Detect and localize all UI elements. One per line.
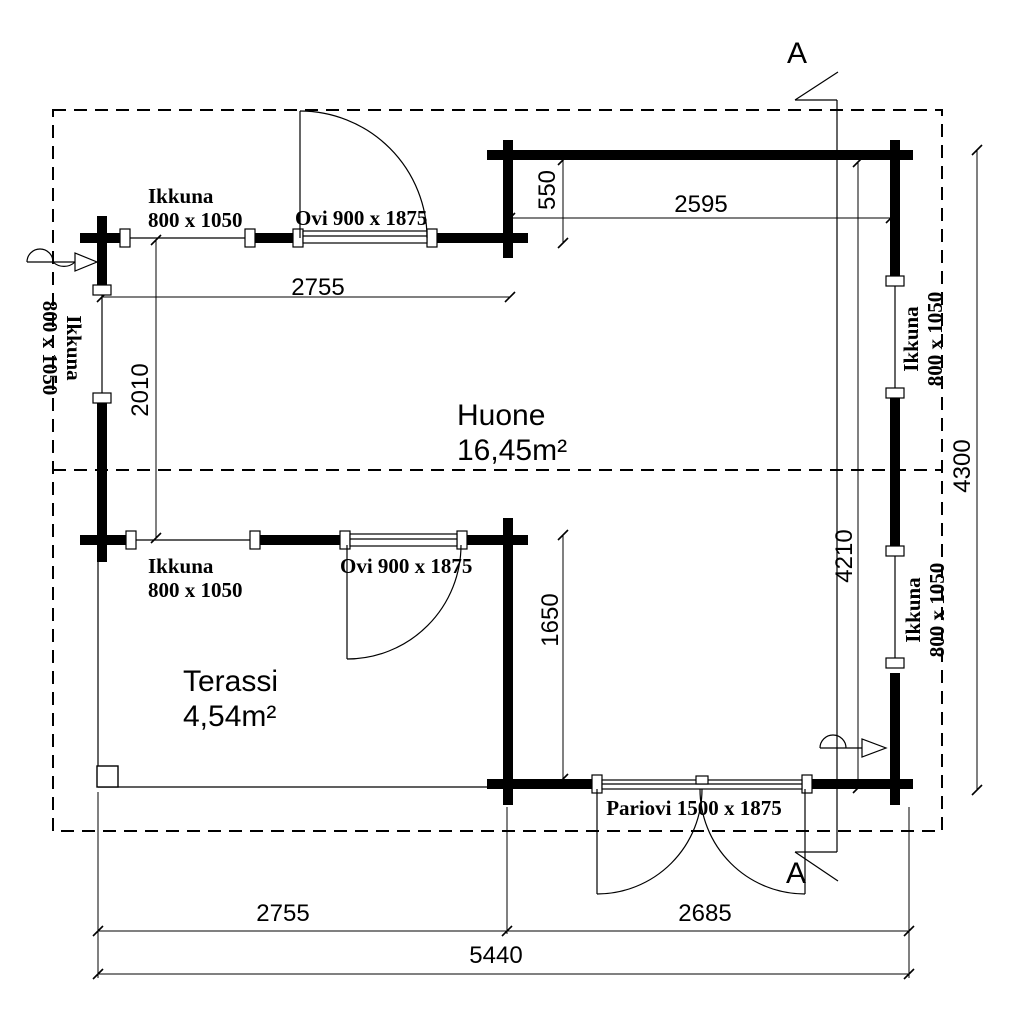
window-label-top: Ikkuna800 x 1050 (148, 184, 243, 232)
wall-segment (890, 393, 900, 547)
door-label-top: Ovi 900 x 1875 (295, 206, 427, 230)
wall-segment (430, 233, 528, 243)
dim-text-4210: 4210 (833, 511, 857, 601)
room-label-huone: Huone16,45m² (457, 398, 567, 468)
wall-segment (805, 779, 913, 789)
wall-segment (462, 535, 528, 545)
dim-text-2755-top: 2755 (288, 276, 348, 300)
dim-text-1650: 1650 (539, 585, 563, 655)
section-line-a (795, 72, 838, 881)
section-flag-top-diagonal (795, 72, 838, 100)
window-symbol-middle (126, 531, 260, 549)
double-door-label: Pariovi 1500 x 1875 (594, 796, 794, 820)
door-label-middle: Ovi 900 x 1875 (340, 554, 472, 578)
entry-arrow-icon-bottom-right (820, 735, 886, 757)
window-symbol-left (93, 285, 111, 403)
window-label-middle: Ikkuna800 x 1050 (148, 554, 243, 602)
wall-segment (890, 140, 900, 283)
door-symbol-middle (340, 531, 467, 659)
dim-text-5440: 5440 (466, 944, 526, 968)
floor-plan-drawing (0, 0, 1024, 1024)
window-label-right-lower: Ikkuna800 x 1050 (901, 554, 949, 666)
wall-segment (256, 535, 345, 545)
wall-segment (503, 518, 513, 805)
dim-text-2595: 2595 (671, 193, 731, 217)
floor-plan-canvas: A A Ikkuna800 x 1050 Ovi 900 x 1875 Ikku… (0, 0, 1024, 1024)
entry-arrow-icon-left (27, 249, 97, 271)
window-label-right-upper: Ikkuna800 x 1050 (899, 283, 947, 395)
room-label-terassi: Terassi4,54m² (183, 664, 278, 734)
section-marker-a-bottom: A (778, 856, 814, 892)
wall-segment (80, 535, 130, 545)
wall-segment (487, 150, 913, 160)
dim-text-2010: 2010 (129, 350, 153, 430)
dim-text-2755-bottom: 2755 (253, 902, 313, 926)
section-marker-a-top: A (779, 36, 815, 72)
dim-text-550: 550 (536, 160, 560, 220)
terrace-post (97, 766, 118, 787)
dim-text-4300: 4300 (951, 421, 975, 511)
wall-segment (97, 216, 107, 293)
dim-text-2685: 2685 (675, 902, 735, 926)
window-label-left: Ikkuna800 x 1050 (38, 292, 86, 404)
